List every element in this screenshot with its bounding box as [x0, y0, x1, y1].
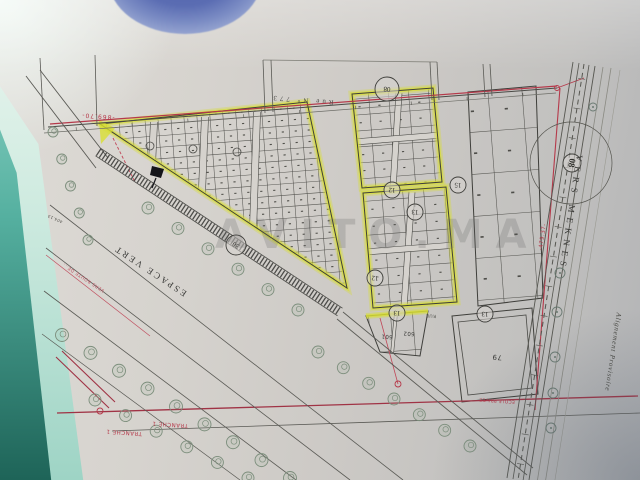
circled-street-number: 13: [389, 305, 405, 321]
tree-icon: [84, 346, 97, 359]
tree-icon: [284, 472, 297, 480]
bush-icon: [546, 423, 556, 433]
street-label-small: RUE: [425, 312, 436, 319]
tree-icon: [198, 418, 211, 431]
tree-icon: [227, 436, 240, 449]
tree-icon: [74, 208, 84, 218]
tree-icon: [232, 263, 244, 275]
bush-icon: [589, 103, 597, 111]
tree-icon: [292, 304, 304, 316]
tree-icon: [413, 409, 425, 421]
svg-text:13: 13: [481, 310, 489, 319]
watermark: AVITO.MA: [215, 212, 615, 258]
tree-icon: [142, 202, 154, 214]
plot-602: 602: [403, 330, 415, 337]
svg-text:12: 12: [371, 274, 379, 283]
phase-label-left: TRANCHE 1: [106, 428, 143, 437]
plot-601: 601: [381, 333, 393, 340]
tree-icon: [141, 382, 154, 395]
svg-text:15: 15: [454, 181, 462, 190]
road-note-red: VERS ROUTE DE...: [62, 261, 106, 293]
circled-street-number: 08: [375, 77, 399, 101]
tree-icon: [242, 472, 254, 480]
tree-icon: [181, 441, 193, 453]
circled-street-number: 12: [367, 270, 383, 286]
tree-icon: [312, 346, 324, 358]
tree-icon: [120, 410, 132, 422]
phase-label-right: TRANCHE 1: [152, 420, 189, 429]
tree-icon: [439, 424, 451, 436]
tree-icon: [170, 400, 183, 413]
svg-text:12: 12: [388, 186, 396, 195]
school-caption: ECOLE PRIVEE: [479, 396, 515, 404]
tree-icon: [57, 154, 67, 164]
photo-of-subdivision-plan: 080830121312131315Rue N° 773-869.70-VERS…: [0, 0, 640, 480]
tree-icon: [172, 222, 184, 234]
tree-icon: [388, 393, 400, 405]
svg-text:13: 13: [393, 309, 401, 318]
dimension-404-13: 404.13: [47, 213, 64, 224]
dimension-869-70: -869.70-: [81, 111, 115, 121]
bush-icon: [548, 388, 558, 398]
roads-layer: [26, 55, 640, 480]
tree-icon: [48, 127, 58, 137]
plot-79: 79: [492, 353, 502, 362]
bush-icon: [552, 307, 562, 317]
alignment-note: Alignement Provisoire: [603, 311, 623, 392]
tree-icon: [66, 181, 76, 191]
tree-icon: [211, 456, 223, 468]
bush-icon: [550, 352, 560, 362]
tree-icon: [202, 243, 214, 255]
circled-street-number: 15: [450, 177, 466, 193]
tree-icon: [262, 284, 274, 296]
tree-icon: [89, 394, 101, 406]
tree-icon: [337, 362, 349, 374]
green-space-label: ESPACE VERT: [112, 243, 189, 298]
tree-icon: [363, 377, 375, 389]
tree-icon: [464, 440, 476, 452]
tree-icon: [255, 454, 268, 467]
svg-text:08: 08: [383, 85, 391, 94]
tree-icon: [83, 235, 93, 245]
tree-icon: [113, 364, 126, 377]
circled-street-number: 12: [384, 182, 400, 198]
tree-icon: [56, 329, 69, 342]
circled-street-number: 13: [477, 306, 493, 322]
